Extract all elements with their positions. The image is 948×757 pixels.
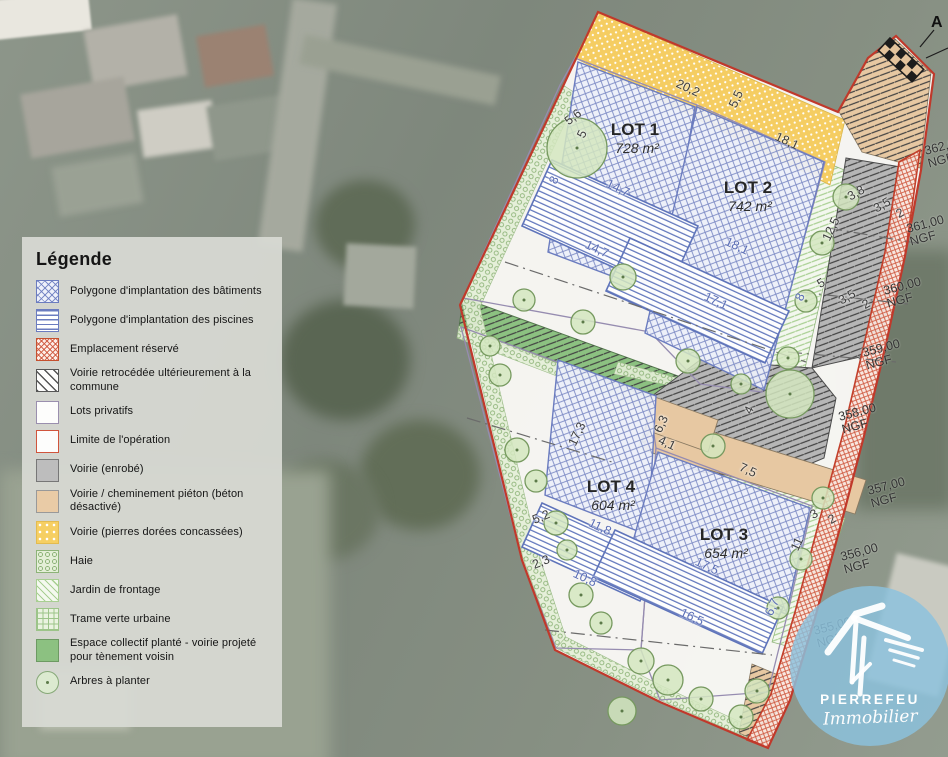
legend-item-label: Voirie (pierres dorées concassées) <box>70 526 243 540</box>
legend-item-label: Espace collectif planté - voirie projeté… <box>70 637 268 665</box>
legend-swatch-trame <box>36 608 59 631</box>
legend-swatch-batiments <box>36 280 59 303</box>
section-marker-leaders <box>920 30 948 58</box>
tree-center-dot <box>622 276 625 279</box>
legend-item: Trame verte urbaine <box>36 608 268 631</box>
tree-center-dot <box>523 299 526 302</box>
tree-center-dot <box>805 300 808 303</box>
tree-center-dot <box>789 393 792 396</box>
legend-swatch-pierres <box>36 521 59 544</box>
legend-item-label: Lots privatifs <box>70 405 133 419</box>
tree-center-dot <box>740 716 743 719</box>
legend-item: Emplacement réservé <box>36 338 268 361</box>
legend-item: Jardin de frontage <box>36 579 268 602</box>
tree-center-dot <box>800 558 803 561</box>
tree-center-dot <box>845 196 848 199</box>
legend-item-label: Voirie / cheminement piéton (béton désac… <box>70 488 268 516</box>
tree-center-dot <box>582 321 585 324</box>
legend-item-label: Jardin de frontage <box>70 584 160 598</box>
legend-item: Voirie (enrobé) <box>36 459 268 482</box>
tree-center-dot <box>640 660 643 663</box>
legend-swatch-pieton <box>36 490 59 513</box>
legend-item: Voirie / cheminement piéton (béton désac… <box>36 488 268 516</box>
legend-item-label: Haie <box>70 555 93 569</box>
logo-tagline: Immobilier <box>822 706 917 729</box>
tree-center-dot <box>821 242 824 245</box>
legend-item: Haie <box>36 550 268 573</box>
legend-item: Polygone d'implantation des bâtiments <box>36 280 268 303</box>
legend-item-label: Polygone d'implantation des piscines <box>70 314 254 328</box>
tree-center-dot <box>822 497 825 500</box>
tree-center-dot <box>576 147 579 150</box>
legend-item-label: Voirie retrocédée ultérieurement à la co… <box>70 367 268 395</box>
legend-item: Limite de l'opération <box>36 430 268 453</box>
legend-swatch-enrobe <box>36 459 59 482</box>
legend-swatch-retro <box>36 369 59 392</box>
legend-item-label: Trame verte urbaine <box>70 613 171 627</box>
legend-item-label: Polygone d'implantation des bâtiments <box>70 285 262 299</box>
legend-swatch-piscines <box>36 309 59 332</box>
tree-center-dot <box>580 594 583 597</box>
legend-item: Arbres à planter <box>36 671 268 694</box>
tree-center-dot <box>740 383 743 386</box>
tree-center-dot <box>535 480 538 483</box>
legend-panel: Légende Polygone d'implantation des bâti… <box>22 237 282 727</box>
site-plan-page: A 20,25,518,15,65814,714,718,117,1853,52… <box>0 0 948 757</box>
legend-item: Voirie retrocédée ultérieurement à la co… <box>36 367 268 395</box>
legend-swatch-haie <box>36 550 59 573</box>
tree-center-dot <box>777 607 780 610</box>
legend-swatch-lots <box>36 401 59 424</box>
tree-center-dot <box>600 622 603 625</box>
legend-item: Polygone d'implantation des piscines <box>36 309 268 332</box>
tree-center-dot <box>700 698 703 701</box>
tree-center-dot <box>555 522 558 525</box>
agency-logo: PIERREFEU Immobilier <box>790 586 948 746</box>
legend-swatch-reserve <box>36 338 59 361</box>
legend-swatch-limite <box>36 430 59 453</box>
tree-center-dot <box>621 710 624 713</box>
tree-center-dot <box>712 445 715 448</box>
legend-item-label: Limite de l'opération <box>70 434 170 448</box>
tree-center-dot <box>756 690 759 693</box>
tree-center-dot <box>499 374 502 377</box>
legend-item: Espace collectif planté - voirie projeté… <box>36 637 268 665</box>
tree-center-dot <box>787 357 790 360</box>
legend-swatch-arbres <box>36 671 59 694</box>
tree-center-dot <box>667 679 670 682</box>
tree-center-dot <box>489 345 492 348</box>
tree-center-dot <box>566 549 569 552</box>
legend-item-label: Voirie (enrobé) <box>70 463 144 477</box>
legend-swatch-jardin <box>36 579 59 602</box>
legend-item: Voirie (pierres dorées concassées) <box>36 521 268 544</box>
tree-center-dot <box>687 360 690 363</box>
legend-item-label: Arbres à planter <box>70 675 150 689</box>
legend-title: Légende <box>36 249 268 270</box>
legend-item-label: Emplacement réservé <box>70 343 179 357</box>
legend-swatch-espace <box>36 639 59 662</box>
legend-item: Lots privatifs <box>36 401 268 424</box>
tree-center-dot <box>516 449 519 452</box>
